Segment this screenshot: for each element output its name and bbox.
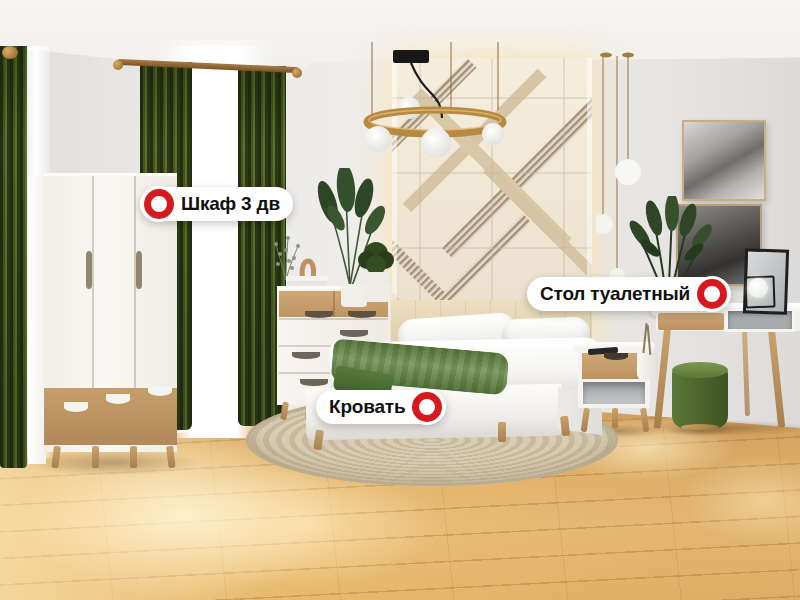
books: [286, 276, 328, 281]
hotspot-wardrobe[interactable]: Шкаф 3 дв: [140, 187, 293, 221]
curtain-rod-finial: [113, 60, 123, 70]
plant-pot: [341, 284, 367, 307]
commode-decor-plants: [272, 168, 402, 308]
curtain-far-left: [0, 46, 27, 468]
curtain-rod-finial: [2, 46, 18, 59]
wardrobe-leg: [130, 446, 137, 468]
bed-leg: [498, 422, 506, 442]
pouf-base: [681, 424, 719, 430]
commode-handle: [305, 311, 333, 318]
wardrobe-leg: [92, 446, 99, 468]
bedroom-product-photo: Шкаф 3 дв Стол туалетный Кровать: [0, 0, 800, 600]
hotspot-label: Шкаф 3 дв: [181, 193, 280, 215]
nightstand-shelf: [583, 382, 645, 404]
hotspot-marker-icon[interactable]: [144, 189, 174, 219]
wardrobe-drawer-cutout: [106, 394, 130, 404]
wardrobe-handle: [86, 251, 92, 289]
hotspot-bed[interactable]: Кровать: [316, 390, 446, 424]
hotspot-label: Кровать: [329, 396, 405, 418]
hotspot-marker-icon[interactable]: [697, 279, 727, 309]
pouf-top: [672, 362, 728, 378]
wall-art-top: [682, 120, 766, 201]
commode-handle: [340, 330, 368, 337]
wardrobe-drawer-cutout: [148, 386, 172, 396]
commode-handle: [292, 352, 320, 359]
pendant-lamp: [345, 42, 525, 172]
hotspot-dressing-table[interactable]: Стол туалетный: [527, 277, 731, 311]
nightstand-leg: [612, 408, 618, 428]
incense-vase: [637, 351, 658, 380]
commode-handle: [348, 311, 376, 318]
nightstand-handle: [604, 353, 628, 360]
curtain-rod-finial: [292, 68, 302, 78]
wardrobe-handle: [136, 251, 142, 289]
commode-handle: [300, 379, 328, 386]
commode-drawer-seam: [279, 318, 388, 320]
hotspot-label: Стол туалетный: [540, 283, 690, 305]
wardrobe-drawer-cutout: [64, 402, 88, 412]
dressing-table-drawer: [658, 313, 724, 330]
hotspot-marker-icon[interactable]: [412, 392, 442, 422]
plant-pot: [365, 272, 389, 302]
pendant-canopy: [393, 50, 429, 63]
table-lamp-globe: [748, 278, 768, 298]
